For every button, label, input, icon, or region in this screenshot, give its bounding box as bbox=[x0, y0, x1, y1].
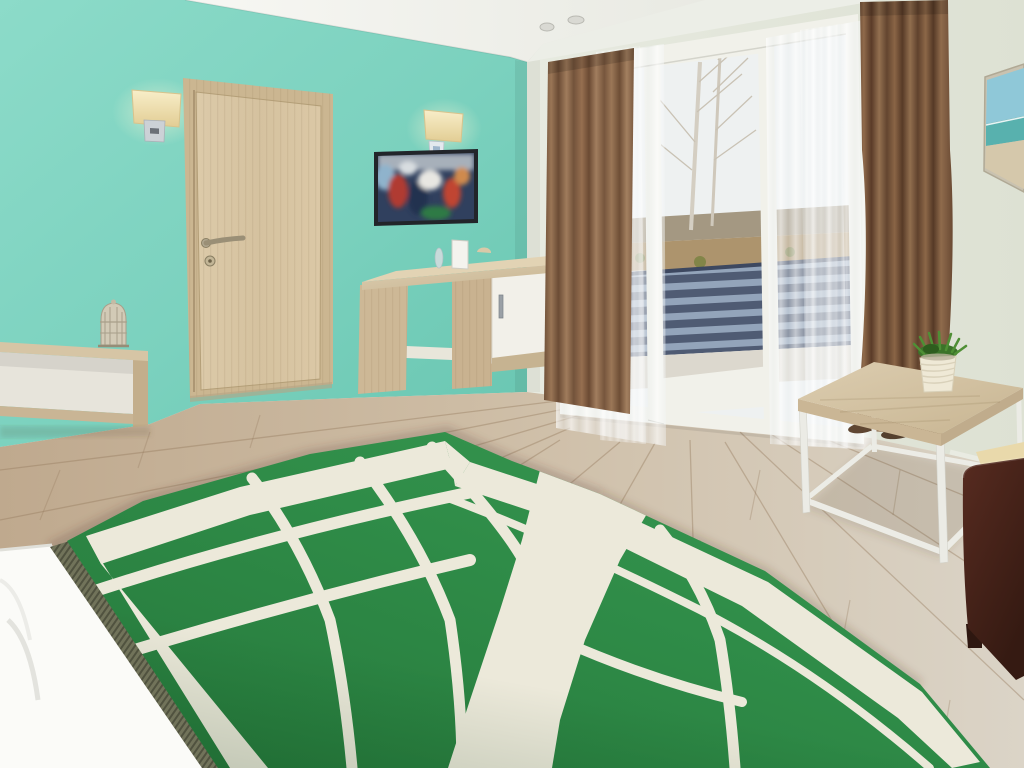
wall-lamp-right bbox=[406, 98, 482, 158]
desk-left-panel-grain bbox=[358, 281, 408, 394]
lamp-shade bbox=[424, 110, 463, 142]
plant-pot bbox=[920, 356, 956, 392]
view-shrub bbox=[694, 256, 706, 268]
hotel-room-photo: Hotel bedroom photo: teal accent wall, w… bbox=[0, 0, 1024, 768]
desk-divider-grain bbox=[452, 276, 492, 389]
tv bbox=[374, 149, 478, 226]
bench-shadow bbox=[0, 426, 150, 438]
entry-door bbox=[183, 78, 333, 402]
curtain-right-top-shadow bbox=[860, 0, 948, 16]
pot-rim bbox=[921, 354, 955, 361]
cabinet-handle bbox=[499, 295, 503, 318]
info-card bbox=[452, 240, 468, 269]
armchair bbox=[963, 442, 1024, 680]
glass-figurine bbox=[435, 248, 443, 268]
desk-skirting bbox=[406, 346, 452, 360]
door-keyhole bbox=[208, 259, 212, 263]
bench-side-panel bbox=[133, 351, 148, 427]
curtain-left bbox=[544, 48, 634, 414]
plant-shade bbox=[923, 344, 939, 354]
room-render bbox=[0, 0, 1024, 768]
ceiling-spotlight bbox=[540, 23, 554, 31]
tv-screen bbox=[375, 150, 476, 224]
beach-picture bbox=[984, 64, 1024, 192]
ceiling-spotlight bbox=[568, 16, 584, 24]
switch-slot bbox=[150, 128, 159, 134]
